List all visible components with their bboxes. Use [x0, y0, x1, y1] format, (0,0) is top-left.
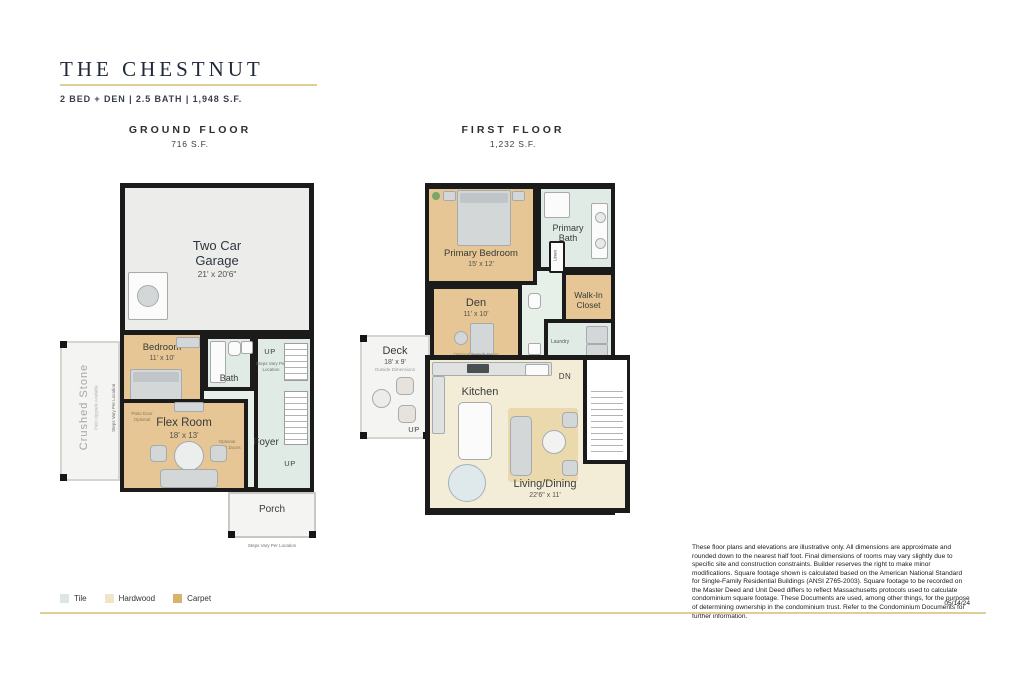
room-label: Deck [362, 345, 428, 358]
kitchen-counter-furniture [432, 376, 445, 434]
room-label: Laundry [551, 339, 569, 345]
hardwood-swatch [105, 594, 114, 603]
deck: Deck 18' x 9' Outside Dimensions [360, 335, 430, 439]
up-label: UP [258, 347, 282, 356]
washer-furniture [586, 326, 608, 344]
pillar [60, 341, 67, 348]
legend-label: Hardwood [119, 594, 155, 603]
steps-vary-note: Steps Vary Per Location [111, 383, 117, 433]
chair-furniture [562, 460, 578, 476]
toilet-fixture [528, 293, 541, 309]
kitchen-counter-furniture [432, 362, 552, 376]
walk-in-label-block: Walk-In Closet [566, 291, 611, 311]
deck-chair-furniture [398, 405, 416, 423]
stairwell [583, 360, 627, 464]
chair-furniture [150, 445, 167, 462]
legend-item-tile: Tile [60, 594, 87, 603]
dining-table-furniture [448, 464, 486, 502]
room-den: Den 11' x 10' Optional French Doors [430, 285, 522, 365]
room-label: Two Car Garage [172, 239, 262, 269]
room-dims: 21' x 20'6" [172, 269, 262, 279]
legend-item-carpet: Carpet [173, 594, 211, 603]
room-label: Primary Bedroom [429, 249, 533, 260]
legend-label: Carpet [187, 594, 211, 603]
legend-item-hardwood: Hardwood [105, 594, 155, 603]
coffee-table-furniture [542, 430, 566, 454]
tile-swatch [60, 594, 69, 603]
room-bath: Bath [204, 335, 254, 391]
stove-furniture [467, 364, 489, 373]
living-dining-label-block: Living/Dining 22'6" x 11' [485, 478, 605, 500]
water-heater-furniture [137, 285, 159, 307]
stairs-down-run [591, 386, 623, 452]
disclaimer-text: These floor plans and elevations are ill… [692, 544, 970, 621]
room-label: Flex Room [124, 417, 244, 430]
sink-fixture [595, 212, 606, 223]
page-title: THE CHESTNUT [60, 57, 264, 82]
sink-fixture [241, 341, 253, 354]
sofa-furniture [510, 416, 532, 476]
foyer-label-block: Foyer [244, 437, 288, 449]
vanity-fixture [591, 203, 608, 259]
linen-label: Linen [553, 242, 558, 270]
plant-icon [432, 192, 440, 200]
patio-upgrade-note: Patio Upgrade Available [94, 358, 99, 458]
pillar [60, 474, 67, 481]
linen-closet: Linen [549, 241, 565, 273]
porch: Porch [228, 492, 316, 538]
steps-vary-note: Steps Vary Per Location [254, 361, 288, 372]
ground-floor-heading: GROUND FLOOR 716 S.F. [110, 124, 270, 149]
ground-floor-area: 716 S.F. [110, 139, 270, 149]
up-label: UP [280, 459, 300, 468]
primary-bedroom-label-block: Primary Bedroom 15' x 12' [429, 249, 533, 269]
first-floor-title: FIRST FLOOR [433, 124, 593, 136]
toilet-fixture [228, 341, 241, 356]
shower-fixture [544, 192, 570, 218]
pillar [309, 531, 316, 538]
pillow-furniture [133, 372, 179, 382]
dresser-furniture [176, 337, 200, 348]
deck-label-block: Deck 18' x 9' Outside Dimensions [362, 345, 428, 372]
first-floor-area: 1,232 S.F. [433, 139, 593, 149]
room-dims: 11' x 10' [434, 311, 518, 319]
room-label: Porch [230, 504, 314, 516]
patio-crushed-stone: Crushed Stone Patio Upgrade Available St… [60, 341, 120, 481]
nightstand-furniture [443, 191, 456, 201]
desk-furniture [470, 323, 494, 355]
chair-furniture [562, 412, 578, 428]
room-primary-bedroom: Primary Bedroom 15' x 12' [425, 185, 537, 285]
first-floor-heading: FIRST FLOOR 1,232 S.F. [433, 124, 593, 149]
pillar [360, 335, 367, 342]
room-kitchen-living-dining: Kitchen DN Living/Dining 22'6" x 11' [425, 355, 630, 513]
room-label: Bath [208, 373, 250, 383]
carpet-swatch [173, 594, 182, 603]
date-label: 05/14/24 [692, 600, 970, 609]
room-foyer-hall: UP Steps Vary Per Location Foyer UP [254, 335, 314, 492]
room-dims: 11' x 10' [124, 355, 200, 363]
deck-table-furniture [372, 389, 391, 408]
kitchen-island-furniture [458, 402, 492, 460]
pillow-furniture [460, 193, 508, 203]
table-furniture [174, 441, 204, 471]
console-furniture [174, 402, 204, 412]
steps-vary-note: Steps Vary Per Location [236, 543, 308, 549]
chair-furniture [210, 445, 227, 462]
up-label: UP [402, 425, 426, 434]
flex-label-block: Flex Room 18' x 13' [124, 417, 244, 440]
room-label: Kitchen [450, 386, 510, 398]
sofa-furniture [160, 469, 218, 488]
pillar [360, 432, 367, 439]
patio-label: Crushed Stone [78, 342, 90, 472]
room-dims: 15' x 12' [429, 261, 533, 269]
floor-plan-sheet: THE CHESTNUT 2 BED + DEN | 2.5 BATH | 1,… [0, 0, 1024, 678]
room-label: Walk-In Closet [566, 291, 611, 311]
fridge-furniture [525, 364, 549, 376]
spec-summary: 2 BED + DEN | 2.5 BATH | 1,948 S.F. [60, 94, 242, 104]
ground-floor-plan: Two Car Garage 21' x 20'6" Bedroom 11' x… [60, 183, 316, 548]
deck-chair-furniture [396, 377, 414, 395]
garage-label-block: Two Car Garage 21' x 20'6" [172, 239, 262, 280]
dn-label: DN [550, 372, 580, 381]
nightstand-furniture [512, 191, 525, 201]
legend: Tile Hardwood Carpet [60, 594, 211, 603]
den-label-block: Den 11' x 10' [434, 297, 518, 319]
sink-fixture [528, 343, 541, 355]
gold-divider [40, 612, 986, 614]
room-dims: 22'6" x 11' [485, 492, 605, 500]
bath-label-block: Bath [208, 373, 250, 383]
pillar [228, 531, 235, 538]
room-two-car-garage: Two Car Garage 21' x 20'6" [120, 183, 314, 335]
bed-furniture [457, 190, 511, 246]
chair-furniture [454, 331, 468, 345]
porch-label-block: Porch [230, 504, 314, 516]
room-label: Foyer [244, 437, 288, 449]
room-label: Living/Dining [485, 478, 605, 491]
title-underline [60, 84, 317, 86]
utility-closet [128, 272, 168, 320]
room-label: Den [434, 297, 518, 310]
legend-label: Tile [74, 594, 87, 603]
outside-dimensions-note: Outside Dimensions [362, 367, 428, 373]
room-dims: 18' x 9' [362, 359, 428, 367]
stairs-up-run [284, 343, 308, 381]
ground-floor-title: GROUND FLOOR [110, 124, 270, 136]
sink-fixture [595, 238, 606, 249]
first-floor-plan: Primary Bedroom 15' x 12' Primary Bath L… [360, 183, 632, 528]
room-flex: Patio Door Optional Flex Room 18' x 13' … [120, 399, 248, 492]
